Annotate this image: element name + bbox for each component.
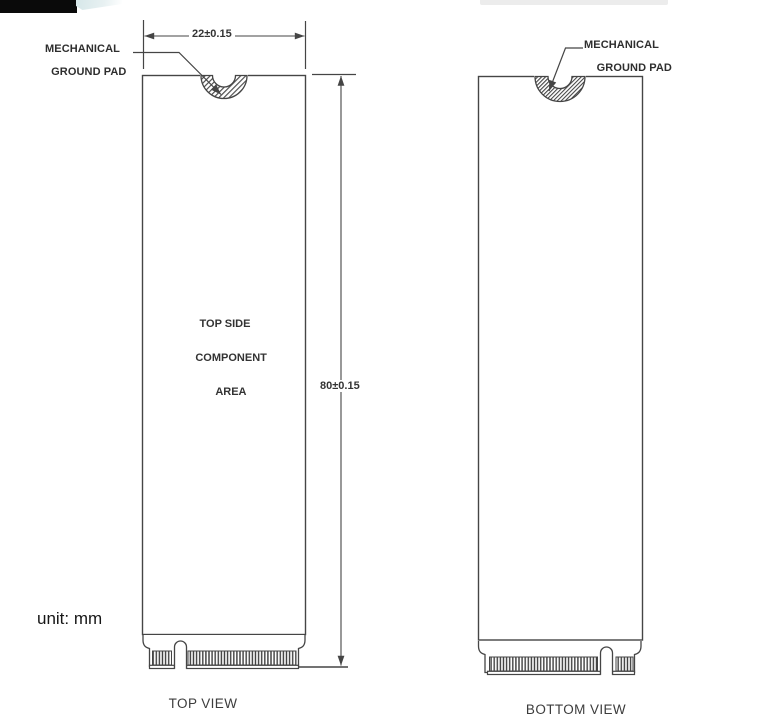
component-area-line2: COMPONENT [195,352,267,364]
component-area-line3: AREA [215,386,246,398]
ground-pad-label-left: MECHANICAL GROUND PAD [35,44,130,90]
component-area-label: TOP SIDE COMPONENT AREA [144,316,306,418]
ground-pad-label-right: MECHANICAL GROUND PAD [584,40,679,86]
height-dimension-text: 80±0.15 [317,380,363,392]
bottom-view-caption: BOTTOM VIEW [503,702,649,717]
ground-pad-label-right-line1: MECHANICAL [584,39,659,51]
connector-base-bar-small-right [613,671,635,674]
key-notch-right [601,647,613,675]
width-dimension-text: 22±0.15 [189,28,235,40]
pin-group-large-left [188,651,296,665]
ground-pad-label-right-line2: GROUND PAD [597,62,672,74]
top-view-caption: TOP VIEW [130,696,276,711]
bottom-view-board-outline [479,77,643,641]
connector-base-bar-large-left [187,665,299,668]
connector-base-bar-large-right [488,671,601,674]
connector-base-bar-small-left [150,665,175,668]
drawing-canvas [0,0,762,728]
component-area-line1: TOP SIDE [200,318,251,330]
unit-note: unit: mm [37,609,102,629]
pin-group-small-left [153,651,172,665]
pin-group-large-right [490,657,598,671]
ground-pad-label-left-line2: GROUND PAD [51,66,126,78]
pin-group-small-right [616,657,633,671]
key-notch-left [175,641,187,669]
mechanical-drawing-page: MECHANICAL GROUND PAD MECHANICAL GROUND … [0,0,762,728]
ground-pad-label-left-line1: MECHANICAL [45,43,120,55]
